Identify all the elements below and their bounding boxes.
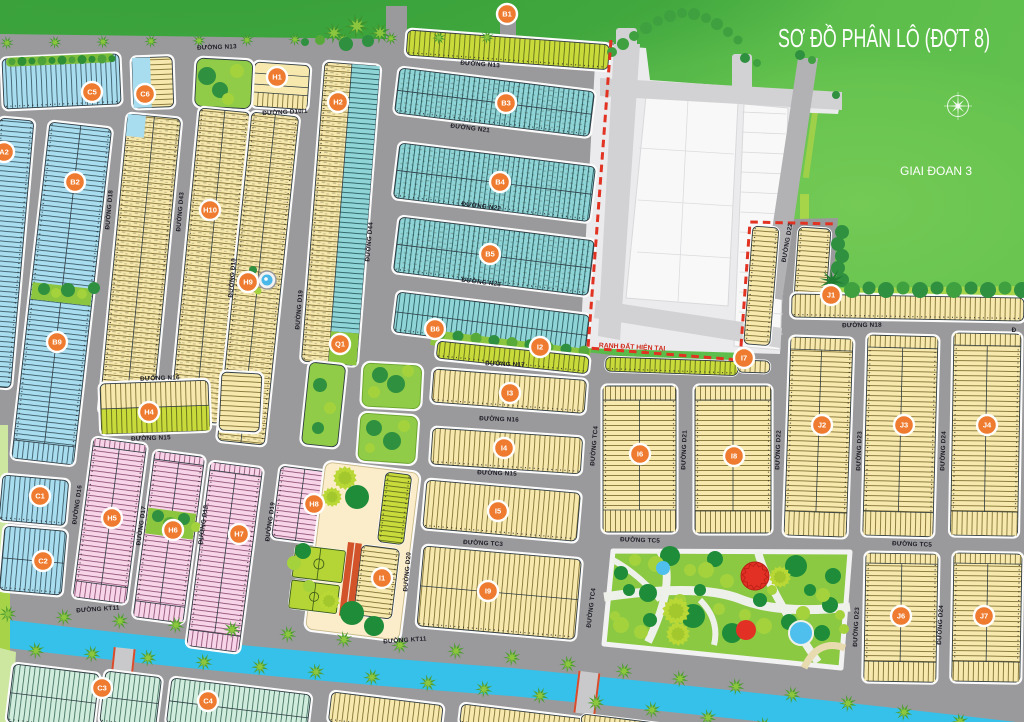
svg-text:SƠ ĐỒ PHÂN LÔ (ĐỢT 8): SƠ ĐỒ PHÂN LÔ (ĐỢT 8): [778, 23, 990, 53]
svg-text:B1: B1: [502, 9, 512, 18]
svg-text:C4: C4: [203, 696, 213, 705]
svg-text:A2: A2: [0, 147, 9, 156]
svg-text:H9: H9: [243, 277, 253, 286]
svg-text:H4: H4: [144, 407, 154, 416]
svg-text:C6: C6: [140, 89, 150, 98]
svg-text:Q1: Q1: [335, 339, 345, 348]
svg-text:J6: J6: [897, 611, 905, 620]
svg-text:H10: H10: [203, 205, 217, 214]
svg-text:I9: I9: [485, 586, 491, 595]
svg-text:C1: C1: [35, 491, 45, 500]
svg-text:H6: H6: [168, 525, 178, 534]
svg-text:GIAI ĐOAN 3: GIAI ĐOAN 3: [900, 164, 972, 178]
svg-text:C5: C5: [87, 87, 97, 96]
svg-text:Đ: Đ: [1012, 327, 1017, 334]
svg-text:I4: I4: [501, 443, 508, 452]
svg-text:B9: B9: [52, 337, 62, 346]
svg-text:J7: J7: [980, 611, 988, 620]
svg-text:B4: B4: [495, 177, 505, 186]
svg-text:I5: I5: [495, 506, 501, 515]
svg-text:I3: I3: [507, 388, 513, 397]
svg-text:H7: H7: [234, 529, 244, 538]
svg-text:B3: B3: [501, 98, 511, 107]
svg-text:I2: I2: [537, 342, 543, 351]
svg-text:H2: H2: [333, 97, 343, 106]
svg-text:J4: J4: [983, 420, 992, 429]
svg-text:I8: I8: [731, 451, 737, 460]
svg-text:J1: J1: [827, 290, 835, 299]
svg-text:C3: C3: [97, 683, 107, 692]
svg-text:J3: J3: [900, 420, 908, 429]
svg-text:H8: H8: [309, 499, 319, 508]
svg-text:H5: H5: [107, 513, 117, 522]
svg-text:B6: B6: [430, 324, 440, 333]
svg-text:J2: J2: [818, 420, 826, 429]
svg-text:B5: B5: [485, 249, 495, 258]
svg-text:I6: I6: [637, 449, 643, 458]
svg-text:I7: I7: [741, 353, 747, 362]
svg-text:H1: H1: [272, 72, 282, 81]
svg-text:C2: C2: [38, 556, 48, 565]
svg-text:B2: B2: [70, 177, 80, 186]
svg-text:I1: I1: [379, 573, 385, 582]
